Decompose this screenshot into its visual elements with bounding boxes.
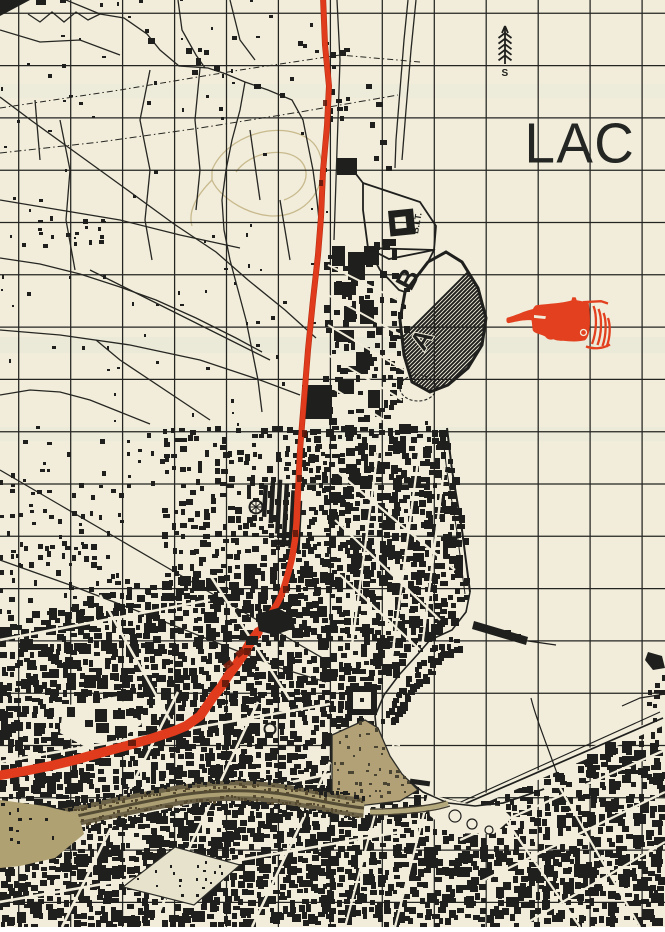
svg-text:LAC: LAC: [525, 110, 636, 174]
svg-text:S: S: [502, 68, 509, 79]
